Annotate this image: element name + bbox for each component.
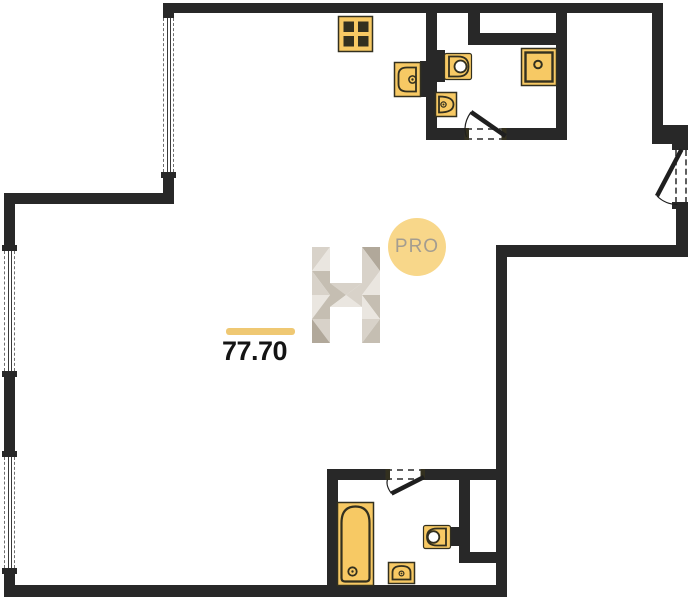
area-value: 77.70	[222, 336, 300, 367]
kitchen-sink-icon	[395, 63, 421, 97]
floor-plan: PRO 77.70	[0, 0, 688, 600]
toilet-top-icon	[445, 54, 472, 80]
shower-icon	[522, 49, 557, 86]
washbasin-bottom-icon	[389, 563, 415, 584]
washbasin-top-icon	[436, 93, 457, 117]
watermark-pro-text: PRO	[395, 236, 439, 258]
watermark-pro-badge: PRO	[388, 218, 446, 276]
area-accent-bar	[226, 328, 295, 335]
toilet-bottom-icon	[424, 526, 451, 549]
watermark-h-logo	[312, 247, 380, 343]
stove-icon	[339, 17, 373, 52]
bathtub-icon	[338, 503, 374, 586]
